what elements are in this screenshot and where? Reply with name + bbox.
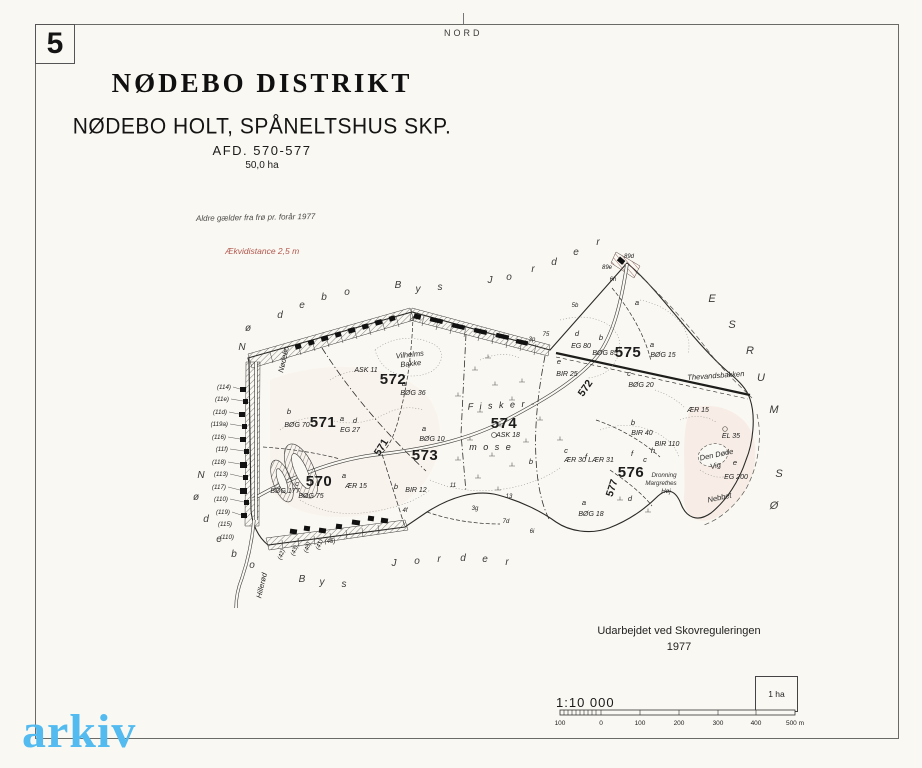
map-label: 3p — [529, 337, 536, 343]
place-dronning-margrethes-hoej: Høj — [661, 488, 671, 495]
contour — [640, 300, 689, 354]
boundary-text-bys-jorder-south: e — [216, 534, 222, 545]
boundary-text-bys-jorder-south: s — [342, 579, 347, 590]
building — [243, 399, 248, 404]
forest-map: 570571572573574575576572577571bBØG 70ASK… — [0, 0, 922, 768]
map-label: 7d — [503, 519, 510, 525]
map-label: a — [582, 498, 586, 507]
map-label: ÆR 30 — [563, 457, 586, 464]
scale-tick-label: 300 — [713, 720, 724, 727]
building — [242, 424, 247, 429]
cadastral-number: (110) — [220, 534, 234, 541]
map-label: EG 27 — [340, 427, 361, 434]
map-label: 75 — [543, 332, 550, 338]
map-label: BØG 85 — [592, 350, 617, 357]
scale-tick-label: 500 m — [786, 720, 804, 727]
map-label: c — [643, 455, 647, 464]
map-label: f — [631, 449, 634, 458]
cadastral-number: (11f) — [216, 446, 228, 453]
map-label: a — [650, 340, 654, 349]
building — [241, 513, 247, 518]
map-label: 3g — [472, 506, 479, 512]
map-sheet: NORD 5 NØDEBO DISTRIKT NØDEBO HOLT, SPÅN… — [0, 0, 922, 768]
cadastral-number: (115) — [218, 521, 232, 528]
map-label: EG 200 — [724, 474, 748, 481]
building — [240, 462, 247, 468]
cadastral-number: (116) — [212, 434, 226, 441]
map-label: 6i — [530, 529, 535, 535]
building — [336, 524, 343, 530]
place-vilhelms-bakke: Bakke — [400, 358, 422, 369]
compartment-574: 574 — [491, 415, 518, 432]
marsh-symbols — [455, 355, 651, 513]
building — [304, 526, 311, 532]
road-label-hilleroed: Hillerød — [254, 571, 269, 599]
boundary-dashed — [427, 512, 500, 524]
map-label: 13 — [506, 494, 513, 500]
compartment-577-road: 577 — [604, 478, 621, 499]
place-dronning-margrethes-hoej: Margrethes — [645, 480, 676, 487]
map-label: 11 — [450, 483, 456, 489]
building — [290, 529, 298, 535]
cadastral-number: (11e) — [215, 396, 229, 403]
cadastral-number: (117) — [212, 484, 226, 491]
boundary-text-bys-jorder-south: o — [414, 556, 420, 567]
map-label: ÆR 15 — [686, 407, 709, 414]
boundary-text-bys-jorder-south: d — [460, 553, 466, 564]
scale-bar-body — [560, 710, 795, 715]
map-label: a — [402, 379, 406, 388]
map-label: e — [733, 458, 737, 467]
boundary-text-bys-jorder-south: e — [482, 554, 488, 565]
map-label: BØG 18 — [578, 511, 603, 518]
cadastral-number: (11d) — [213, 409, 227, 416]
lake-text-esrum-soe: U — [757, 372, 765, 384]
building — [240, 488, 247, 494]
place-thevandsbakken: Thevandsbakken — [687, 369, 745, 382]
building — [243, 475, 248, 480]
building — [381, 518, 389, 524]
building — [240, 437, 246, 442]
boundary-dashdot — [536, 356, 549, 519]
map-label: 5b — [572, 303, 579, 309]
scale-bar-labels: 1000100200300400500 m — [555, 720, 804, 727]
lake-text-esrum-soe: M — [769, 404, 779, 416]
map-label: d — [628, 494, 633, 503]
contour — [655, 390, 685, 408]
building — [244, 500, 249, 505]
boundary-text-noedebo-bys-jorder: J — [487, 275, 494, 286]
boundary-text-bys-jorder-south: b — [231, 549, 237, 560]
map-label: EG 80 — [571, 343, 591, 350]
place-fiskermose: m o s e — [469, 442, 513, 452]
lake-text-esrum-soe: R — [746, 345, 754, 357]
map-label: e — [557, 357, 561, 366]
map-label: BØG 10 — [419, 436, 444, 443]
map-label: BØG 177 — [270, 488, 300, 495]
map-label: b — [529, 457, 533, 466]
map-label: c — [627, 369, 631, 378]
map-label: BIR 110 — [655, 441, 680, 448]
boundary-text-noedebo-bys-jorder: e — [299, 300, 305, 311]
map-label: ASK 11 — [353, 367, 377, 374]
compartment-572-road: 572 — [576, 378, 596, 399]
scale-bar: 1000100200300400500 m — [555, 710, 804, 727]
compartment-573: 573 — [412, 447, 439, 464]
boundary-text-noedebo-bys-jorder: o — [506, 272, 512, 283]
boundary-text-noedebo-bys-jorder: r — [596, 237, 600, 248]
boundary-text-noedebo-bys-jorder: d — [277, 310, 283, 321]
boundary-text-noedebo-bys-jorder: r — [531, 264, 535, 275]
compartment-570: 570 — [306, 473, 333, 490]
scale-tick-label: 200 — [674, 720, 685, 727]
scale-tick-label: 100 — [635, 720, 646, 727]
map-label: 89e — [602, 265, 613, 271]
archive-watermark: arkiv — [22, 704, 136, 759]
cadastral-number: (119a) — [211, 421, 228, 428]
building — [319, 528, 327, 534]
leader-lines — [228, 387, 244, 515]
lake-text-esrum-soe: Ø — [769, 500, 780, 512]
map-label: c — [295, 479, 299, 488]
lake-text-esrum-soe: S — [775, 468, 783, 480]
map-label: c — [564, 446, 568, 455]
boundary-text-bys-jorder-south: y — [319, 577, 326, 588]
building — [239, 412, 245, 417]
scale-tick-label: 400 — [751, 720, 762, 727]
map-label: ÆR 15 — [344, 483, 367, 490]
cadastral-number: (119) — [216, 509, 230, 516]
boundary-text-noedebo-bys-jorder: b — [321, 292, 327, 303]
boundary-text-bys-jorder-south: N — [197, 470, 205, 481]
boundary-text-bys-jorder-south: r — [437, 554, 441, 565]
boundary-text-bys-jorder-south: r — [505, 557, 509, 568]
map-label: b — [599, 333, 603, 342]
map-label: LÆR 31 — [588, 457, 614, 464]
map-label: BØG 36 — [400, 390, 425, 397]
cadastral-number: (118) — [212, 459, 226, 466]
lake-text-esrum-soe: S — [728, 319, 736, 331]
map-label: a — [422, 424, 426, 433]
map-label: BIR 12 — [405, 487, 427, 494]
compartment-571: 571 — [310, 414, 337, 431]
map-label: BØG 75 — [298, 493, 323, 500]
map-label: BIR 25 — [556, 371, 578, 378]
map-label: a — [342, 471, 346, 480]
map-label: EL 35 — [722, 433, 740, 440]
building — [244, 449, 249, 454]
boundary-text-noedebo-bys-jorder: B — [395, 280, 402, 291]
boundary-text-noedebo-bys-jorder: e — [573, 247, 579, 258]
map-label: a — [635, 298, 639, 307]
boundary-text-bys-jorder-south: B — [299, 574, 306, 585]
map-label: BIR 40 — [631, 430, 653, 437]
map-label: ASK 18 — [495, 432, 520, 439]
boundary-text-bys-jorder-south: ø — [193, 492, 199, 503]
compartment-575: 575 — [615, 344, 642, 361]
boundary-text-noedebo-bys-jorder: y — [415, 284, 422, 295]
boundary-text-bys-jorder-south: d — [203, 514, 209, 525]
boundary-text-noedebo-bys-jorder: d — [551, 257, 557, 268]
map-label: d — [575, 329, 580, 338]
scale-tick-label: 100 — [555, 720, 566, 727]
boundary-text-noedebo-bys-jorder: s — [438, 282, 443, 293]
map-label: b — [394, 482, 398, 491]
boundary-text-noedebo-bys-jorder: o — [344, 287, 350, 298]
cadastral-number: (113) — [214, 471, 228, 478]
boundary-text-bys-jorder-south: o — [249, 560, 255, 571]
map-label: BØG 15 — [650, 352, 675, 359]
cadastral-number: (110) — [214, 496, 228, 503]
map-label: (42) — [277, 549, 286, 561]
boundary-text-noedebo-bys-jorder: ø — [245, 323, 251, 334]
contour — [480, 354, 520, 360]
map-label: BØG 20 — [628, 382, 653, 389]
compartment-576: 576 — [618, 464, 645, 481]
building — [352, 519, 361, 525]
boundary-text-bys-jorder-south: J — [391, 558, 398, 569]
map-label: 4f — [402, 508, 408, 514]
building — [240, 387, 246, 392]
place-dronning-margrethes-hoej: Dronning — [651, 472, 677, 479]
building — [368, 516, 375, 522]
boundary-dashdot — [461, 334, 466, 492]
map-label: 6h — [610, 277, 617, 283]
boundary-text-noedebo-bys-jorder: N — [238, 342, 246, 353]
map-label: b — [287, 407, 291, 416]
scale-tick-label: 0 — [599, 720, 603, 727]
map-label: (45) — [325, 539, 336, 545]
cadastral-number: (114) — [217, 384, 231, 391]
map-label: BØG 70 — [284, 422, 309, 429]
map-label: a — [340, 414, 344, 423]
map-label: 89d — [624, 254, 635, 260]
lake-text-esrum-soe: E — [708, 293, 716, 305]
map-label: b — [631, 418, 635, 427]
